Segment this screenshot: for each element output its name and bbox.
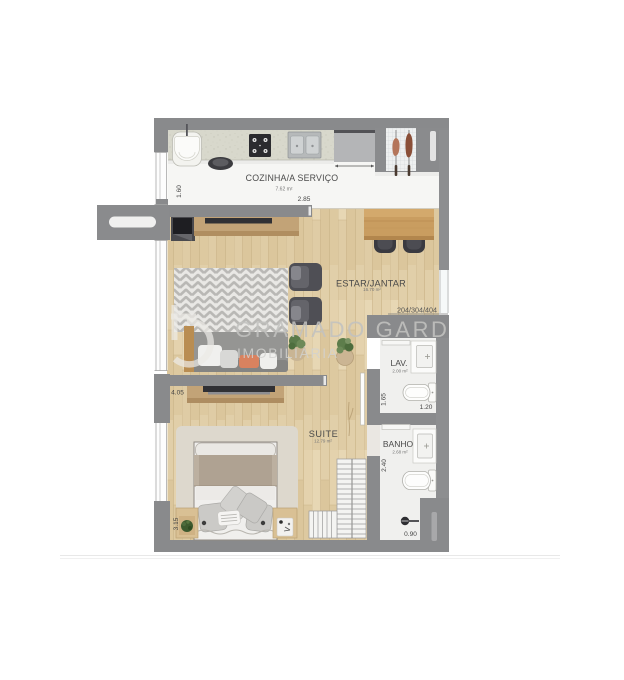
svg-text:4.05: 4.05: [171, 390, 184, 397]
svg-text:IMOBILIÁRIA: IMOBILIÁRIA: [237, 345, 339, 361]
svg-text:2.00 m²: 2.00 m²: [392, 369, 408, 374]
svg-text:204/304/404: 204/304/404: [397, 306, 437, 315]
svg-text:12.79 m²: 12.79 m²: [314, 439, 332, 444]
svg-text:1.60: 1.60: [176, 185, 183, 198]
svg-text:3.15: 3.15: [173, 517, 180, 530]
svg-text:2.85: 2.85: [298, 196, 311, 203]
svg-text:SUITE: SUITE: [309, 429, 339, 439]
svg-text:GRAMADO GARD: GRAMADO GARD: [235, 317, 450, 342]
svg-text:2.40: 2.40: [381, 459, 388, 472]
svg-text:0.90: 0.90: [404, 531, 417, 538]
svg-text:LAV.: LAV.: [390, 358, 407, 368]
svg-text:BANHO: BANHO: [383, 439, 414, 449]
svg-text:1.20: 1.20: [420, 404, 433, 411]
svg-text:1.65: 1.65: [381, 393, 388, 406]
svg-text:16.70 m²: 16.70 m²: [363, 287, 381, 292]
svg-text:7.62 m²: 7.62 m²: [276, 187, 293, 193]
svg-text:COZINHA/A SERVIÇO: COZINHA/A SERVIÇO: [246, 173, 339, 183]
svg-text:2.68 m²: 2.68 m²: [392, 450, 408, 455]
